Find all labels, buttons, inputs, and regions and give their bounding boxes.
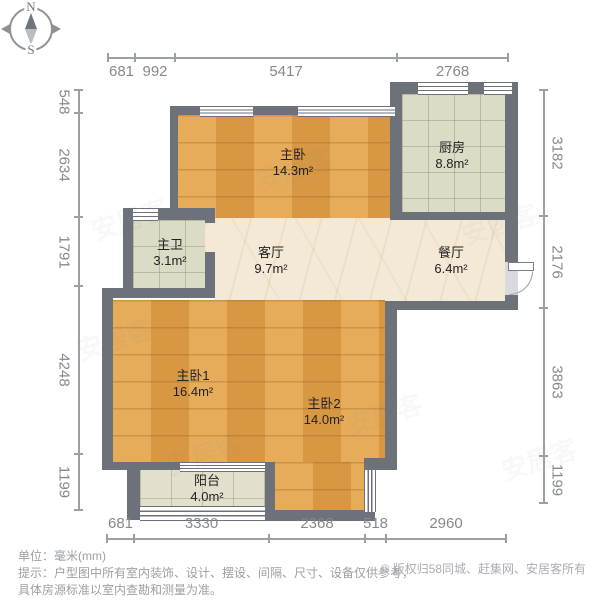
kitchen-window-1 bbox=[418, 82, 468, 95]
ruler-top-line bbox=[108, 57, 508, 59]
room-area: 16.4m² bbox=[173, 384, 213, 400]
ruler-right-tick-0 bbox=[539, 89, 548, 91]
ruler-right-line bbox=[543, 90, 545, 503]
ruler-bottom-tick-5 bbox=[505, 534, 507, 543]
dim-label-right-1: 2176 bbox=[549, 245, 566, 278]
dim-label-top-1: 992 bbox=[142, 63, 167, 80]
room-area: 3.1m² bbox=[153, 253, 186, 269]
ruler-bottom-tick-3 bbox=[364, 534, 366, 543]
compass-east-arrow-icon bbox=[52, 24, 61, 34]
dim-label-left-4: 1199 bbox=[56, 466, 73, 498]
compass-north-label: N bbox=[24, 0, 37, 13]
ruler-bottom-tick-1 bbox=[133, 534, 135, 543]
compass-south-label: S bbox=[25, 43, 36, 56]
bathroom-doorway-floor bbox=[205, 223, 215, 252]
dim-label-left-2: 1791 bbox=[56, 235, 73, 268]
right-exterior-wall-upper bbox=[505, 82, 518, 262]
compass: N S bbox=[0, 0, 66, 62]
bedroom1-bottom-wall bbox=[102, 462, 180, 470]
ruler-right-tick-1 bbox=[539, 215, 548, 217]
entry-door-leaf bbox=[508, 262, 534, 271]
dim-label-left-0: 548 bbox=[56, 89, 73, 114]
bedroom-top-window-2 bbox=[298, 106, 395, 117]
dim-label-bottom-0: 681 bbox=[108, 515, 133, 532]
room-area: 14.0m² bbox=[304, 412, 344, 428]
kitchen-bottom-wall bbox=[395, 212, 505, 220]
ruler-top-tick-0 bbox=[107, 53, 109, 62]
room-name: 阳台 bbox=[190, 473, 223, 489]
bathroom-bottom-wall bbox=[102, 288, 215, 298]
disclaimer-line1: 提示：户型图中所有室内装饰、设计、摆设、间隔、尺寸、设备仅供参考， bbox=[18, 565, 414, 582]
dim-label-right-2: 3863 bbox=[549, 365, 566, 398]
compass-needle-north-icon bbox=[25, 13, 37, 29]
ruler-bottom-tick-0 bbox=[106, 534, 108, 543]
room-name: 客厅 bbox=[254, 245, 287, 261]
ruler-bottom-tick-4 bbox=[385, 534, 387, 543]
dining-bottom-wall bbox=[385, 301, 518, 310]
bedroom-top-window-1 bbox=[200, 106, 253, 117]
room-area: 8.8m² bbox=[435, 156, 468, 172]
footer-notes: 单位：毫米(mm) 提示：户型图中所有室内装饰、设计、摆设、间隔、尺寸、设备仅供… bbox=[18, 548, 414, 599]
bedroom1-bedroom2-floor bbox=[113, 300, 385, 462]
ruler-left-tick-3 bbox=[74, 285, 83, 287]
room-label-master-bath: 主卫 3.1m² bbox=[153, 237, 186, 269]
dim-label-bottom-1: 3330 bbox=[185, 515, 218, 532]
dim-label-top-3: 2768 bbox=[436, 63, 469, 80]
ruler-left-tick-0 bbox=[74, 89, 83, 91]
dim-label-left-3: 4248 bbox=[56, 353, 73, 386]
room-name: 主卧 bbox=[273, 147, 313, 163]
entry-door-swing-arc bbox=[509, 271, 533, 295]
room-area: 14.3m² bbox=[273, 163, 313, 179]
room-label-master-bedroom-2: 主卧2 14.0m² bbox=[304, 396, 344, 428]
ruler-bottom-line bbox=[107, 538, 506, 540]
room-label-balcony: 阳台 4.0m² bbox=[190, 473, 223, 505]
dim-label-bottom-3: 518 bbox=[363, 515, 388, 532]
floor-plan-page: N S 主卧 14.3m² 厨房 8.8m² bbox=[0, 0, 600, 600]
copyright-text: © 版权归58同城、赶集网、安居客所有 bbox=[380, 560, 586, 577]
ruler-bottom-tick-2 bbox=[268, 534, 270, 543]
dim-label-top-0: 681 bbox=[109, 63, 134, 80]
ruler-top-tick-3 bbox=[396, 53, 398, 62]
ruler-left-tick-1 bbox=[74, 112, 83, 114]
dim-label-left-1: 2634 bbox=[56, 148, 73, 181]
watermark-5: 安居客 bbox=[496, 429, 582, 488]
bedroom2-step-wall bbox=[364, 458, 397, 470]
room-label-kitchen: 厨房 8.8m² bbox=[435, 140, 468, 172]
room-name: 厨房 bbox=[435, 140, 468, 156]
bathroom-right-wall-upper bbox=[205, 208, 215, 223]
room-area: 6.4m² bbox=[434, 261, 467, 277]
bedroom2-side-window bbox=[364, 470, 376, 512]
dim-label-bottom-4: 2960 bbox=[429, 515, 462, 532]
ruler-right-tick-3 bbox=[539, 455, 548, 457]
room-label-dining-room: 餐厅 6.4m² bbox=[434, 245, 467, 277]
bedroom2-right-wall bbox=[385, 301, 397, 470]
balcony-left-wall bbox=[127, 462, 140, 520]
room-name: 主卧2 bbox=[304, 396, 344, 412]
dim-label-right-3: 1199 bbox=[549, 463, 566, 495]
room-area: 9.7m² bbox=[254, 261, 287, 277]
dim-label-bottom-2: 2368 bbox=[300, 515, 333, 532]
ruler-top-tick-1 bbox=[134, 53, 136, 62]
room-label-living-room: 客厅 9.7m² bbox=[254, 245, 287, 277]
room-area: 4.0m² bbox=[190, 489, 223, 505]
ruler-left-line bbox=[78, 90, 80, 510]
ruler-right-tick-4 bbox=[539, 502, 548, 504]
disclaimer-line2: 具体房源标准以室内查勘和测量为准。 bbox=[18, 582, 414, 599]
bedroom2-lower-floor bbox=[275, 462, 364, 510]
room-label-master-bedroom-top: 主卧 14.3m² bbox=[273, 147, 313, 179]
dim-label-top-2: 5417 bbox=[269, 63, 302, 80]
kitchen-window-2 bbox=[484, 82, 512, 95]
balcony-sliding-door bbox=[180, 462, 265, 472]
bedroom1-left-wall bbox=[102, 288, 113, 470]
ruler-top-tick-2 bbox=[174, 53, 176, 62]
room-label-master-bedroom-1: 主卧1 16.4m² bbox=[173, 368, 213, 400]
ruler-left-tick-5 bbox=[74, 509, 83, 511]
room-name: 主卧1 bbox=[173, 368, 213, 384]
ruler-left-tick-4 bbox=[74, 453, 83, 455]
bedroom-left-wall bbox=[170, 106, 178, 220]
room-name: 主卫 bbox=[153, 237, 186, 253]
ruler-left-tick-2 bbox=[74, 216, 83, 218]
dim-label-right-0: 3182 bbox=[549, 136, 566, 169]
room-name: 餐厅 bbox=[434, 245, 467, 261]
bathroom-window bbox=[133, 208, 158, 221]
bathroom-left-wall bbox=[123, 208, 133, 298]
kitchen-left-wall bbox=[390, 82, 402, 220]
unit-note: 单位：毫米(mm) bbox=[18, 548, 414, 565]
ruler-right-tick-2 bbox=[539, 307, 548, 309]
compass-west-arrow-icon bbox=[1, 24, 10, 34]
ruler-top-tick-4 bbox=[507, 53, 509, 62]
